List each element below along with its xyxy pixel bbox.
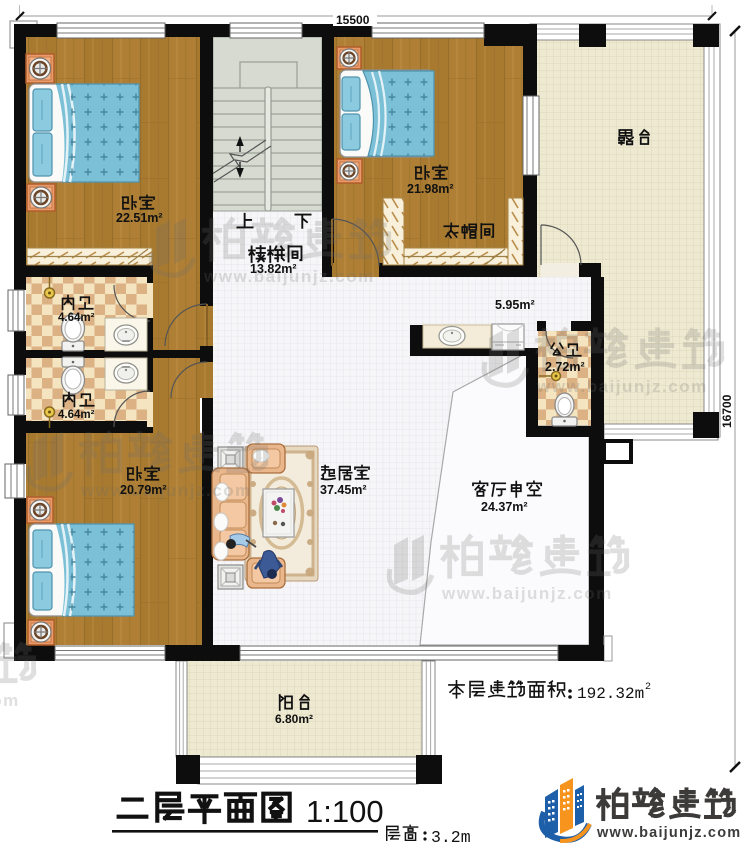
svg-text:3.2m: 3.2m (431, 828, 471, 847)
svg-text:16700: 16700 (720, 394, 734, 428)
svg-text:15500: 15500 (336, 13, 370, 27)
svg-text:37.45m²: 37.45m² (320, 483, 367, 497)
svg-text:www.baijunjz.com: www.baijunjz.com (536, 377, 708, 396)
svg-text:21.98m²: 21.98m² (407, 182, 454, 196)
svg-text:2: 2 (645, 682, 651, 693)
svg-text:6.80m²: 6.80m² (275, 712, 313, 726)
svg-text:1:100: 1:100 (306, 794, 384, 829)
svg-text:13.82m²: 13.82m² (250, 262, 297, 276)
svg-text:4.64m²: 4.64m² (58, 409, 95, 421)
svg-text:www.baijunjz.com: www.baijunjz.com (596, 825, 741, 841)
svg-text:192.32m: 192.32m (577, 685, 644, 703)
svg-text:20.79m²: 20.79m² (120, 483, 167, 497)
svg-text:www.baijunjz.com: www.baijunjz.com (441, 584, 613, 603)
svg-text:24.37m²: 24.37m² (481, 500, 528, 514)
svg-text:2.72m²: 2.72m² (545, 360, 585, 374)
svg-text:5.95m²: 5.95m² (495, 298, 535, 312)
svg-text:4.64m²: 4.64m² (58, 312, 95, 324)
svg-text:www.baijunjz.com: www.baijunjz.com (0, 691, 20, 710)
svg-text:22.51m²: 22.51m² (116, 211, 163, 225)
